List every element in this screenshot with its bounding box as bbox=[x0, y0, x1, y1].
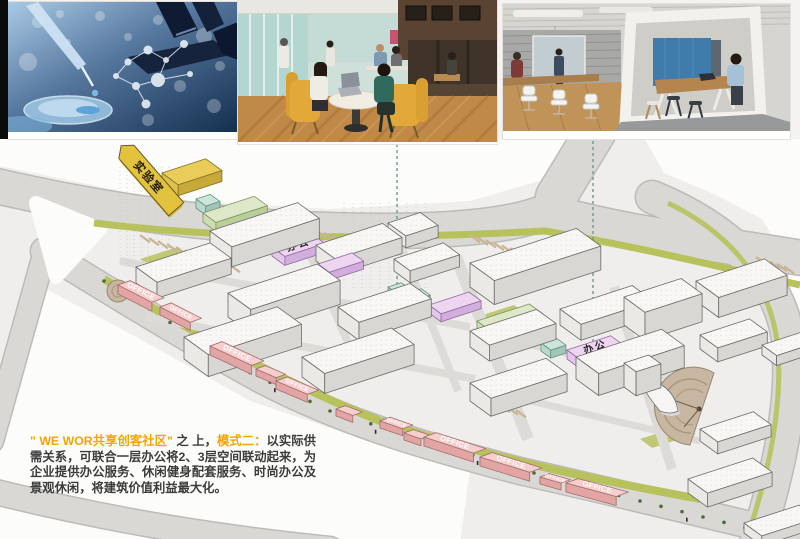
caption-mode-label: 模式二： bbox=[217, 434, 267, 448]
caption-mid-text: 之 上， bbox=[173, 434, 217, 448]
photo-office-pod bbox=[503, 4, 790, 139]
laboratory-illustration bbox=[8, 2, 238, 132]
office-pod-illustration bbox=[503, 4, 790, 131]
cafe-illustration bbox=[238, 0, 497, 142]
slide-canvas: 办公OFFICEOFFICE办公OFFICEOFFICEOFFICEOFFICE… bbox=[0, 0, 800, 539]
caption-block: " WE WOR共享创客社区" 之 上，模式二：以实际供需关系，可联合一层办公将… bbox=[30, 434, 316, 496]
photo-coworking-cafe bbox=[238, 0, 497, 144]
left-black-bar bbox=[0, 0, 8, 139]
photo-laboratory bbox=[8, 2, 238, 139]
caption-project-name: " WE WOR共享创客社区" bbox=[30, 434, 173, 448]
